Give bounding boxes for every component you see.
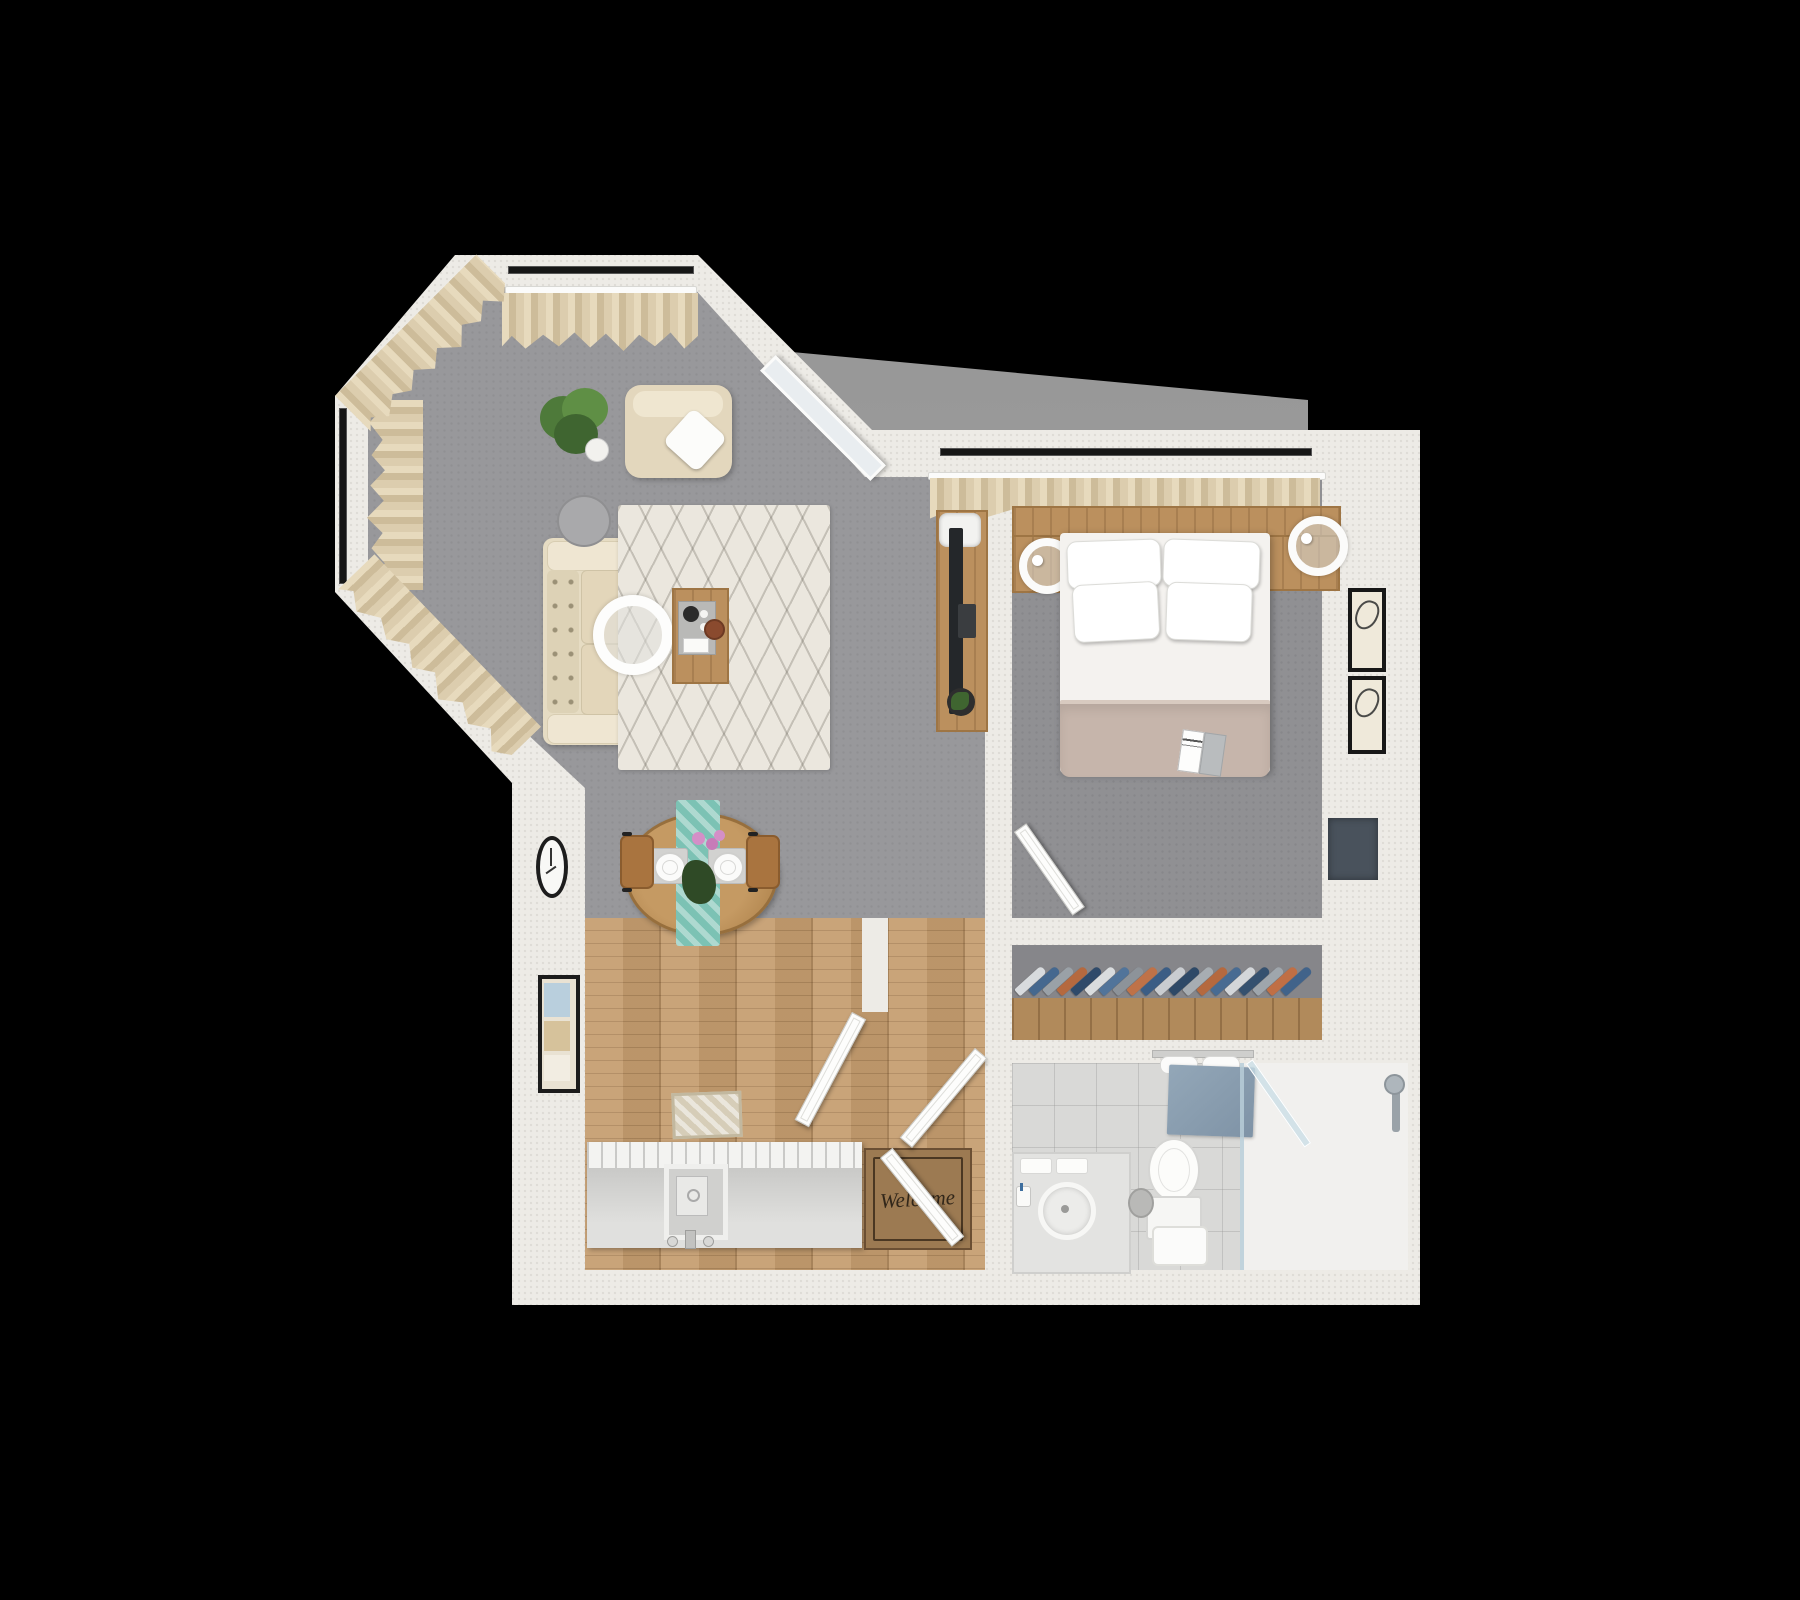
- kitchen-sink: [664, 1164, 728, 1240]
- folded-towel: [1056, 1158, 1088, 1174]
- bedside-lamp-right: [1288, 516, 1348, 576]
- shower-glass-panel: [1240, 1063, 1244, 1270]
- kitchen-rug: [671, 1091, 743, 1139]
- closet-floor: [1012, 945, 1322, 1040]
- waste-bin: [1128, 1188, 1154, 1218]
- window-glass-left: [339, 408, 347, 584]
- dining-chair: [746, 835, 780, 889]
- toilet-bowl: [1148, 1138, 1200, 1202]
- framed-line-art-print: [1348, 676, 1386, 754]
- flower-bloom: [714, 830, 725, 841]
- walk-in-shower-area: [1240, 1063, 1408, 1270]
- bed-pillow: [1165, 582, 1253, 643]
- window-glass-top: [508, 266, 694, 274]
- framed-line-art-print: [1348, 588, 1386, 672]
- wall-clock: [536, 836, 568, 898]
- living-room-carpet-floor: [0, 0, 1800, 1600]
- flower-bloom: [692, 832, 705, 845]
- artwork-detail: [544, 1055, 570, 1081]
- coffee-cup: [700, 610, 708, 618]
- curtain-rod-top: [505, 286, 697, 294]
- shower-head: [1384, 1074, 1405, 1095]
- window-glass-bedroom: [940, 448, 1312, 456]
- potted-plant: [540, 388, 612, 466]
- artwork-detail: [544, 1021, 570, 1051]
- dining-chair: [620, 835, 654, 889]
- decorative-bowl: [704, 619, 725, 640]
- throw-pillow: [663, 408, 728, 473]
- open-magazine: [1177, 729, 1226, 775]
- double-bed: [1060, 533, 1270, 773]
- folded-towel: [1020, 1158, 1052, 1174]
- bathroom-vanity: [1012, 1152, 1131, 1274]
- floor-plan-canvas: Welcome: [0, 0, 1800, 1600]
- bed-pillow: [1072, 581, 1161, 643]
- tv-stand-foot: [958, 604, 976, 638]
- artwork-detail: [544, 983, 570, 1017]
- bed-duvet: [1060, 700, 1270, 777]
- tv-console: [936, 510, 988, 732]
- small-plant: [947, 688, 975, 716]
- armchair: [625, 385, 732, 478]
- coffee-pot: [683, 606, 699, 622]
- wall-mounted-tv: [1328, 818, 1382, 880]
- coffee-table: [672, 588, 729, 684]
- framed-artwork-kitchen: [538, 975, 580, 1093]
- toothbrush-cup: [1016, 1186, 1031, 1207]
- armchair-backrest: [633, 391, 723, 417]
- kitchen-faucet: [685, 1230, 696, 1249]
- faucet-knob: [703, 1236, 714, 1247]
- closet-clothes-row: [1026, 963, 1316, 1007]
- shower-stool: [1152, 1226, 1208, 1266]
- hall-wall-stub: [862, 918, 888, 1012]
- vanity-basin: [1038, 1182, 1096, 1240]
- faucet-knob: [667, 1236, 678, 1247]
- arc-floor-lamp-shade: [593, 595, 673, 675]
- book: [683, 638, 709, 653]
- plant-pot: [585, 438, 609, 462]
- sink-drain: [687, 1189, 700, 1202]
- kitchen-counter: [587, 1142, 862, 1248]
